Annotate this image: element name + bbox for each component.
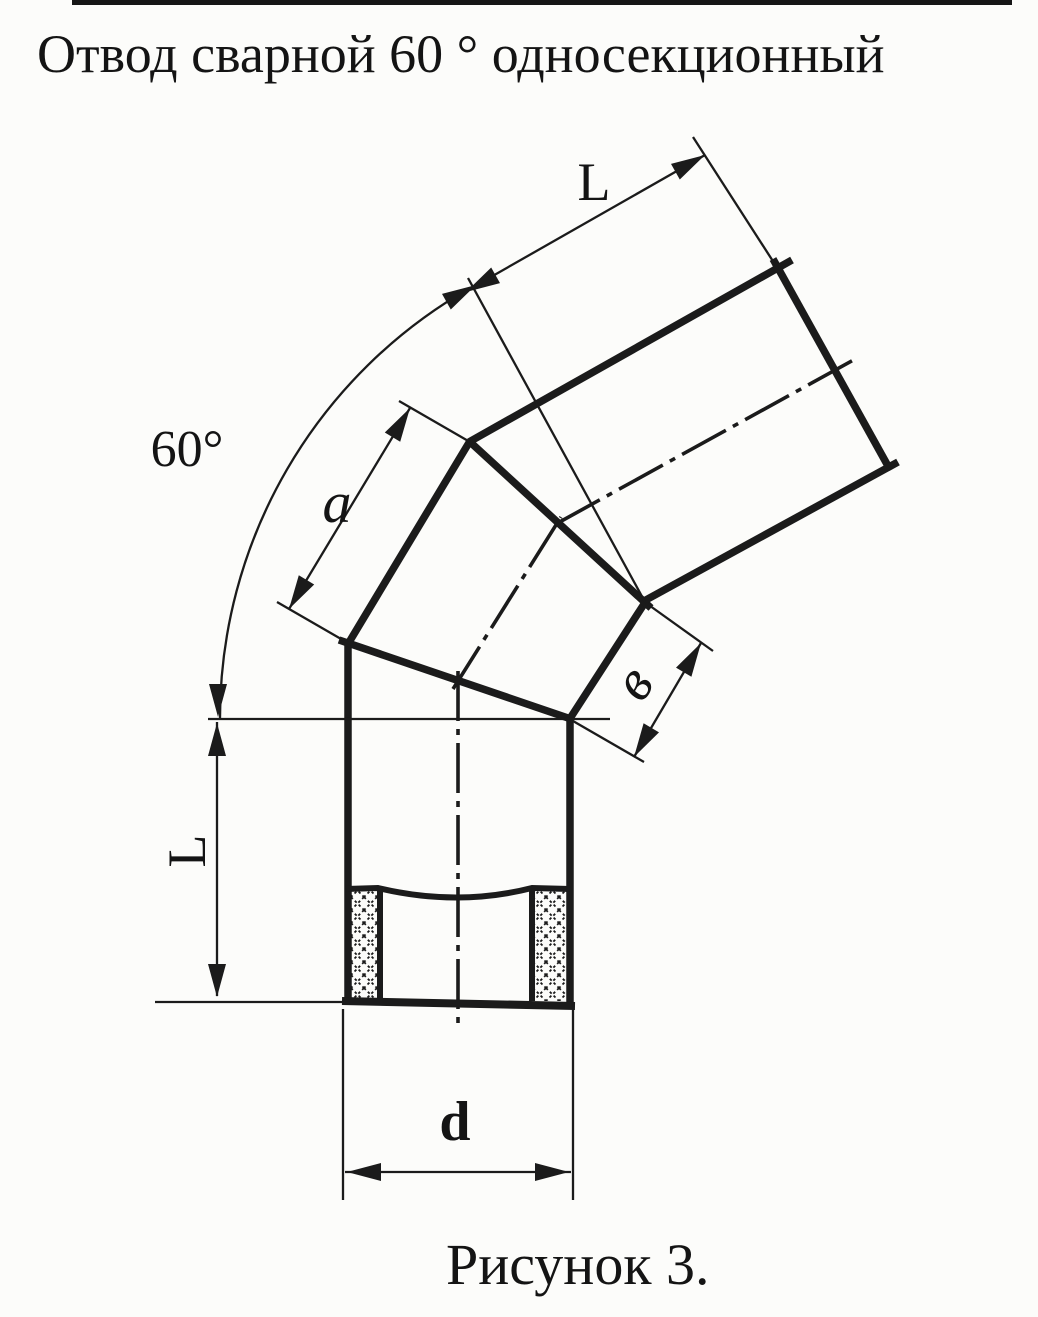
ext-line-L-top-far <box>693 137 778 269</box>
scan-artifact-top-strip <box>72 0 1012 5</box>
weld-joint-lower <box>339 640 571 719</box>
arrowhead-arc-lower <box>209 684 227 717</box>
centerline-top-pipe <box>556 358 857 524</box>
arrowhead-L-bottom-top <box>208 723 226 756</box>
arrowhead-d-left <box>347 1163 381 1181</box>
socket-hatch-left <box>350 891 378 1001</box>
arrowhead-v-upper <box>676 643 701 677</box>
angle-label-60deg: 60° <box>151 421 224 478</box>
figure-caption: Рисунок 3. <box>446 1232 710 1297</box>
arrowhead-v-lower <box>634 723 659 757</box>
arrowhead-L-top-right <box>671 155 705 180</box>
dim-label-L-bottom: L <box>157 835 217 868</box>
arrowhead-a-lower <box>289 575 314 609</box>
ext-line-v-upper <box>646 603 713 651</box>
elbow-technical-drawing: Отвод сварной 60 ° односекционный <box>0 0 1038 1317</box>
dim-label-v: в <box>599 654 667 712</box>
ext-line-a-upper <box>399 401 470 442</box>
segment-left-wall <box>348 441 470 644</box>
arrowhead-L-top-left <box>466 268 500 293</box>
arrowhead-d-right <box>535 1163 569 1181</box>
dim-label-d: d <box>439 1091 470 1153</box>
arrowhead-L-bottom-bottom <box>208 964 226 997</box>
ext-line-a-lower <box>277 602 348 643</box>
top-pipe-bottom-edge <box>644 462 898 601</box>
drawing-title: Отвод сварной 60 ° односекционный <box>37 24 885 84</box>
bottom-pipe-end-edge <box>342 1001 575 1006</box>
arrowhead-a-upper <box>385 408 410 442</box>
top-pipe-top-edge <box>469 260 792 442</box>
scanned-drawing-page: Отвод сварной 60 ° односекционный <box>0 0 1038 1317</box>
top-pipe-end-face <box>773 259 888 466</box>
dim-label-L-top: L <box>578 152 611 212</box>
socket-hatch-right <box>534 891 566 1001</box>
ext-line-L-top-near <box>468 278 645 602</box>
weld-joint-upper <box>469 441 651 608</box>
elbow-outline <box>339 259 898 1006</box>
dim-label-a: a <box>323 470 352 535</box>
centerline-middle-segment <box>453 517 561 689</box>
